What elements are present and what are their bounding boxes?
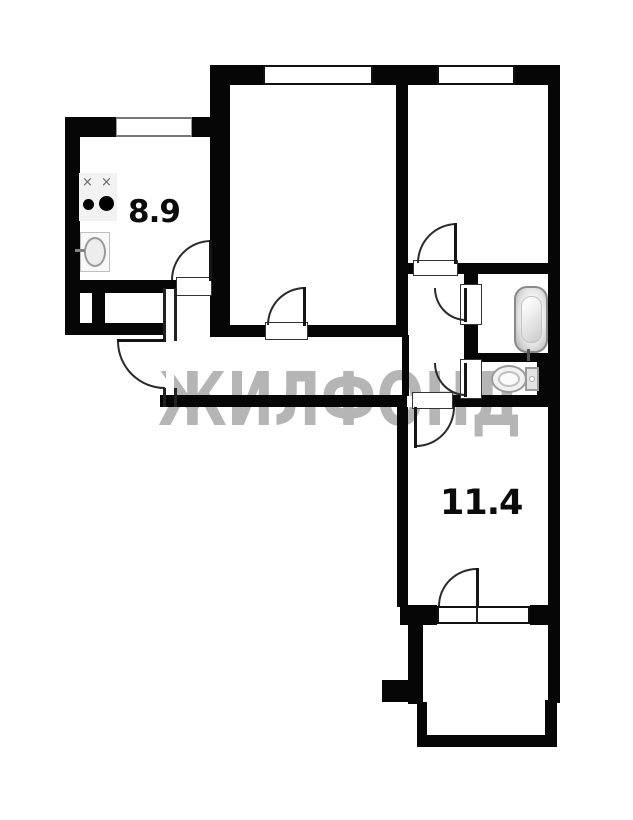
toilet-bowl-inner <box>498 371 520 387</box>
room-door-leaf <box>414 407 417 448</box>
kitchen-area-label: 8.9 <box>128 197 180 228</box>
stove-burner-dot <box>99 196 114 211</box>
entrance-jamb-right-lower <box>174 388 177 407</box>
wall-balcony-right <box>545 700 557 747</box>
stove-burner-mark: × <box>82 176 93 189</box>
balcony-window-divider <box>476 606 478 624</box>
bath-door-arc <box>434 288 466 321</box>
balcony-window <box>437 606 530 624</box>
wall-step-block <box>382 680 423 702</box>
entrance-jamb-left-upper <box>163 288 166 341</box>
toilet-icon <box>491 365 527 393</box>
wall-kitchen-bigroom <box>210 65 230 337</box>
bath-door-leaf <box>464 288 467 322</box>
kitchen-door-arc <box>171 240 211 280</box>
wall-kitchen-bottom <box>65 280 177 293</box>
entrance-door-arc <box>117 341 165 389</box>
sink-icon <box>80 232 110 272</box>
entrance-door-leaf <box>117 339 166 342</box>
entrance-jamb-right-upper <box>174 288 177 341</box>
wall-bigroom-rightroom <box>396 65 408 335</box>
stove-icon: × × <box>79 173 117 221</box>
rightroom-window <box>437 65 515 85</box>
wall-window-east <box>530 605 548 625</box>
stove-burner-mark: × <box>101 176 112 189</box>
wall-balcony-bottom <box>417 735 557 747</box>
entrance-channel <box>166 289 174 395</box>
rightroom-door-arc <box>417 223 457 263</box>
bigroom-door-arc <box>267 287 305 325</box>
bigroom-door-leaf <box>303 287 306 326</box>
wall-left-outer <box>65 117 80 335</box>
wall-closet-divider <box>92 293 105 323</box>
kitchen-window <box>116 117 192 137</box>
bathtub-inner <box>521 296 542 343</box>
bathtub-icon <box>514 286 548 353</box>
bigroom-window <box>263 65 373 85</box>
wall-wc-right <box>537 362 552 395</box>
entrance-jamb-left-lower <box>163 388 166 407</box>
bathtub-drain <box>527 349 530 361</box>
toilet-tank-button <box>529 376 535 382</box>
sink-basin <box>84 237 106 267</box>
wall-closet-bottom <box>65 323 165 335</box>
balcony-door-leaf <box>476 568 479 607</box>
stove-burner-dot <box>83 199 94 210</box>
rightroom-door-leaf <box>454 223 457 264</box>
wall-room-left <box>397 407 408 607</box>
balcony-door-arc <box>438 568 477 606</box>
room-area-label: 11.4 <box>440 486 522 521</box>
wc-door-leaf <box>464 363 467 397</box>
floor-plan: ЖИЛФОНД <box>0 0 633 820</box>
wall-slit <box>407 396 412 407</box>
wall-corridor-south-west <box>160 395 407 407</box>
sink-faucet <box>75 249 85 252</box>
kitchen-door-leaf <box>209 240 212 281</box>
